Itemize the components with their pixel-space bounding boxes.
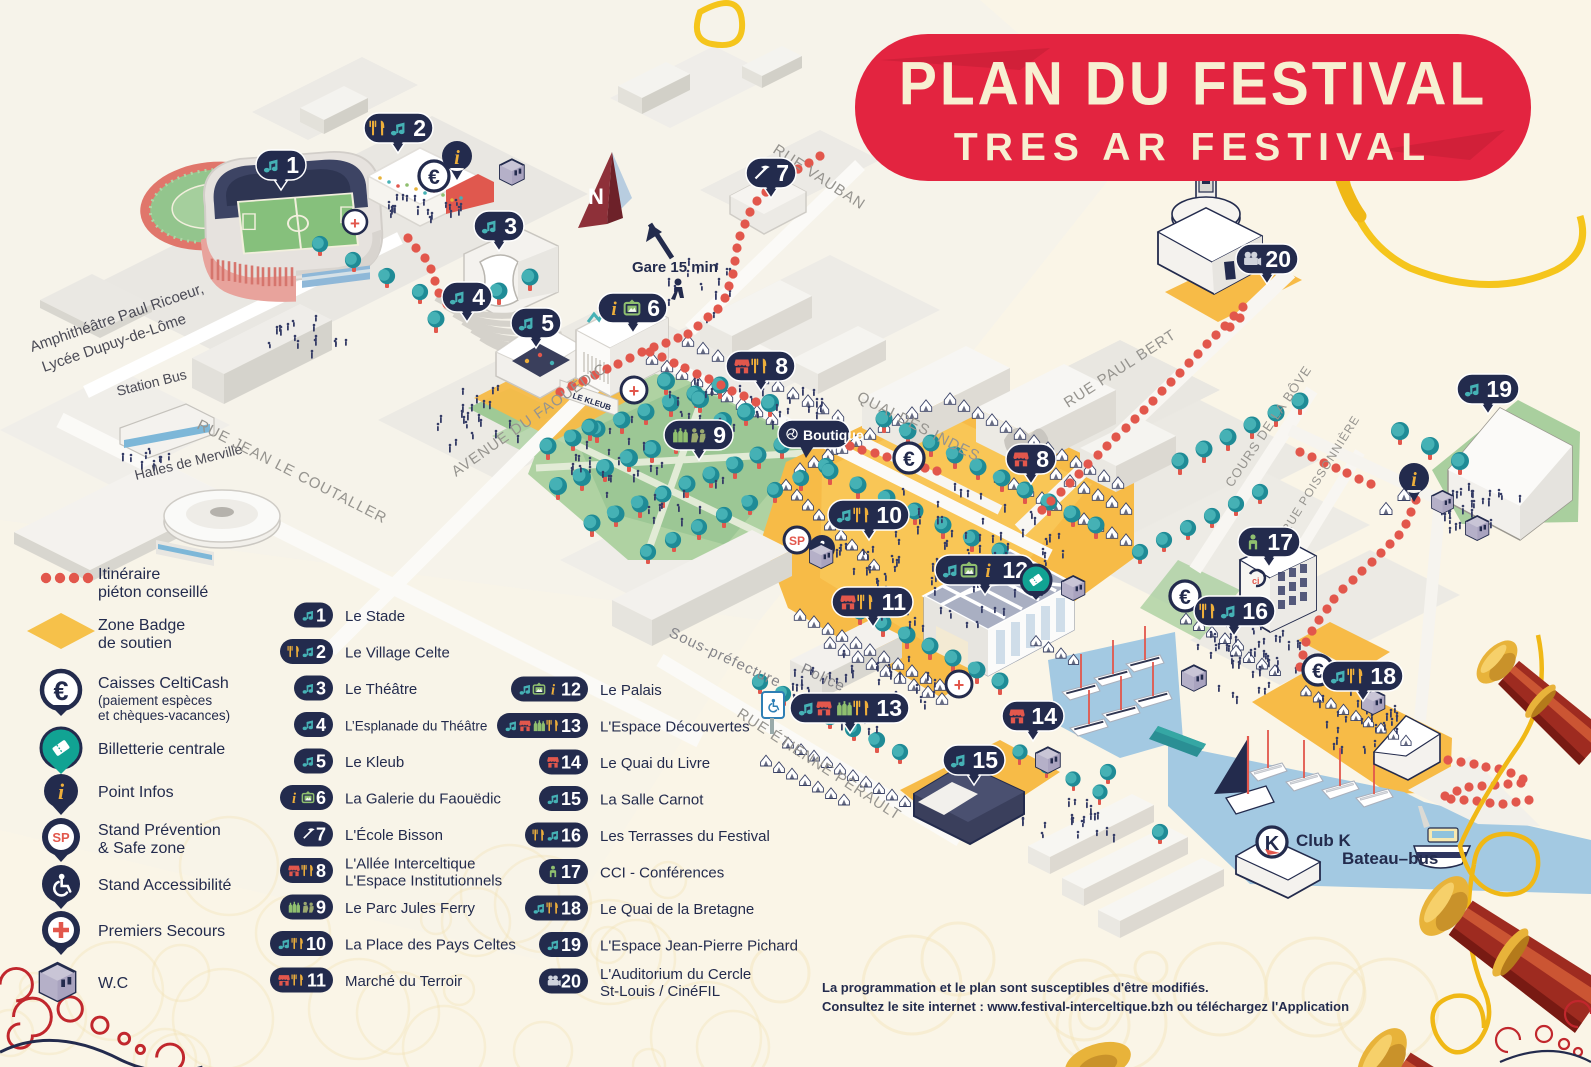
svg-text:Itinéraire: Itinéraire <box>98 566 160 583</box>
svg-text:17: 17 <box>1267 529 1293 555</box>
svg-text:Caisses CeltiCash: Caisses CeltiCash <box>98 675 229 692</box>
svg-text:Le Kleub: Le Kleub <box>345 754 404 771</box>
svg-text:Boutique: Boutique <box>803 427 864 443</box>
svg-text:W.C: W.C <box>98 975 128 992</box>
svg-text:L’Esplanade du Théâtre: L’Esplanade du Théâtre <box>345 719 487 734</box>
svg-text:et chèques-vacances): et chèques-vacances) <box>98 708 230 723</box>
svg-text:La Place des Pays Celtes: La Place des Pays Celtes <box>345 937 516 954</box>
svg-text:Premiers Secours: Premiers Secours <box>98 923 225 940</box>
svg-text:Le Parc Jules Ferry: Le Parc Jules Ferry <box>345 900 476 917</box>
svg-text:Le Quai du Livre: Le Quai du Livre <box>600 755 710 772</box>
svg-text:18: 18 <box>561 899 581 919</box>
svg-text:Le Stade: Le Stade <box>345 608 405 625</box>
svg-text:14: 14 <box>1031 703 1057 729</box>
svg-text:N: N <box>588 184 604 209</box>
svg-text:Marché du Terroir: Marché du Terroir <box>345 973 462 990</box>
svg-text:L'Allée Interceltique: L'Allée Interceltique <box>345 856 475 873</box>
svg-text:i: i <box>611 299 617 320</box>
svg-text:Le Théâtre: Le Théâtre <box>345 681 417 698</box>
svg-text:+: + <box>954 675 965 695</box>
svg-text:20: 20 <box>561 972 581 992</box>
svg-text:SP: SP <box>52 830 70 845</box>
svg-text:10: 10 <box>306 934 326 954</box>
svg-text:€: € <box>428 166 440 189</box>
svg-text:ci: ci <box>1252 576 1260 586</box>
svg-text:14: 14 <box>561 753 581 773</box>
svg-text:& Safe zone: & Safe zone <box>98 840 185 857</box>
svg-text:Stand Accessibilité: Stand Accessibilité <box>98 877 232 894</box>
svg-text:€: € <box>1179 586 1191 609</box>
svg-text:19: 19 <box>561 935 581 955</box>
svg-text:Le Village Celte: Le Village Celte <box>345 645 450 662</box>
svg-text:16: 16 <box>1242 598 1268 624</box>
svg-text:€: € <box>903 448 915 471</box>
svg-text:Le Palais: Le Palais <box>600 682 662 699</box>
svg-text:6: 6 <box>647 295 660 321</box>
svg-text:8: 8 <box>316 861 326 881</box>
svg-text:8: 8 <box>775 353 788 379</box>
svg-text:9: 9 <box>713 422 726 448</box>
svg-text:Stand Prévention: Stand Prévention <box>98 822 221 839</box>
svg-text:L'Espace Découvertes: L'Espace Découvertes <box>600 719 750 736</box>
svg-text:8: 8 <box>1036 446 1049 472</box>
svg-text:Point Infos: Point Infos <box>98 784 174 801</box>
svg-text:13: 13 <box>561 716 581 736</box>
svg-text:6: 6 <box>316 788 326 808</box>
svg-text:SP: SP <box>789 534 805 548</box>
svg-text:Les Terrasses du Festival: Les Terrasses du Festival <box>600 828 770 845</box>
svg-text:Club K: Club K <box>1296 831 1351 850</box>
svg-text:i: i <box>1411 469 1417 491</box>
svg-text:1: 1 <box>316 606 326 626</box>
svg-text:9: 9 <box>316 898 326 918</box>
svg-text:CCI - Conférences: CCI - Conférences <box>600 865 724 882</box>
svg-text:PLAN DU FESTIVAL: PLAN DU FESTIVAL <box>899 49 1487 119</box>
svg-text:€: € <box>53 676 68 706</box>
svg-text:La Salle Carnot: La Salle Carnot <box>600 792 704 809</box>
svg-text:13: 13 <box>876 695 902 721</box>
svg-text:7: 7 <box>316 825 326 845</box>
svg-text:L'Auditorium du Cercle: L'Auditorium du Cercle <box>600 966 751 983</box>
svg-text:11: 11 <box>307 971 326 991</box>
svg-text:2: 2 <box>316 642 326 662</box>
svg-text:5: 5 <box>541 310 554 336</box>
svg-text:+: + <box>629 381 640 401</box>
svg-text:L'École Bisson: L'École Bisson <box>345 827 443 844</box>
svg-text:St-Louis / CinéFIL: St-Louis / CinéFIL <box>600 983 720 1000</box>
svg-text:4: 4 <box>316 715 326 735</box>
svg-text:La programmation et le plan so: La programmation et le plan sont suscept… <box>822 980 1209 995</box>
svg-text:5: 5 <box>316 752 326 772</box>
svg-text:18: 18 <box>1370 663 1396 689</box>
svg-text:1: 1 <box>286 152 299 178</box>
svg-text:12: 12 <box>561 680 581 700</box>
svg-text:20: 20 <box>1265 246 1291 272</box>
svg-text:i: i <box>58 779 65 804</box>
svg-text:TRES AR FESTIVAL: TRES AR FESTIVAL <box>954 126 1432 169</box>
svg-text:piéton conseillé: piéton conseillé <box>98 584 208 601</box>
svg-text:Gare 15 min: Gare 15 min <box>632 259 718 276</box>
svg-text:de soutien: de soutien <box>98 635 172 652</box>
svg-text:L'Espace Jean-Pierre Pichard: L'Espace Jean-Pierre Pichard <box>600 938 798 955</box>
svg-text:7: 7 <box>776 160 789 186</box>
svg-text:17: 17 <box>561 862 581 882</box>
svg-text:Le Quai de la Bretagne: Le Quai de la Bretagne <box>600 901 754 918</box>
svg-text:2: 2 <box>413 115 426 141</box>
svg-text:16: 16 <box>561 826 581 846</box>
svg-text:Billetterie centrale: Billetterie centrale <box>98 741 225 758</box>
svg-text:19: 19 <box>1486 376 1512 402</box>
svg-text:+: + <box>350 214 360 233</box>
svg-text:i: i <box>454 147 460 169</box>
svg-text:10: 10 <box>876 502 902 528</box>
svg-text:La Galerie du Faouëdic: La Galerie du Faouëdic <box>345 791 501 808</box>
svg-text:15: 15 <box>561 789 581 809</box>
svg-text:3: 3 <box>316 679 326 699</box>
svg-text:Consultez le site internet : w: Consultez le site internet : www.festiva… <box>822 999 1349 1014</box>
svg-text:15: 15 <box>972 747 998 773</box>
svg-text:(paiement espèces: (paiement espèces <box>98 693 212 708</box>
svg-text:4: 4 <box>472 284 485 310</box>
svg-text:3: 3 <box>504 213 517 239</box>
svg-text:11: 11 <box>882 589 907 615</box>
svg-text:Bateau–bus: Bateau–bus <box>1342 849 1438 868</box>
svg-text:L'Espace Institutionnels: L'Espace Institutionnels <box>345 873 502 890</box>
svg-text:Zone Badge: Zone Badge <box>98 617 185 634</box>
svg-text:i: i <box>985 561 991 582</box>
